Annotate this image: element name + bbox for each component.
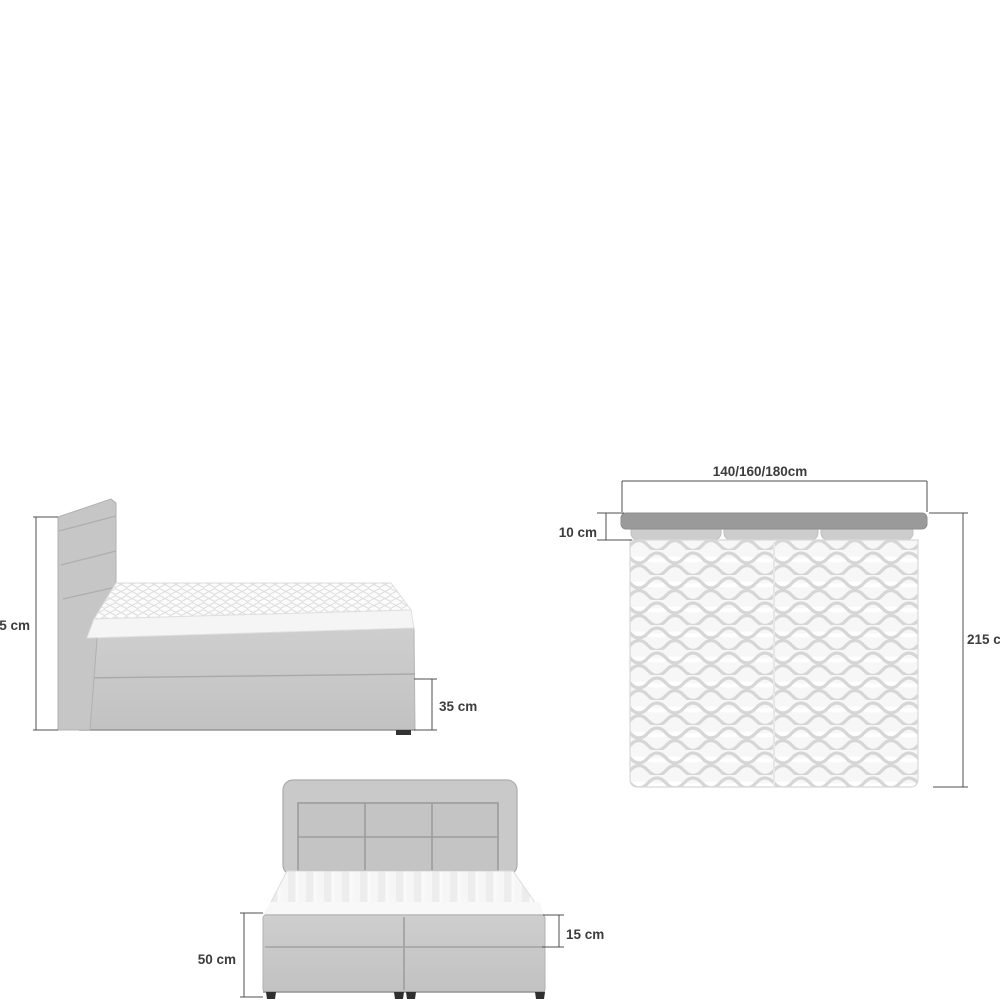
- side-height-label: 115 cm: [0, 618, 30, 633]
- side-height-dimension: 115 cm: [0, 517, 58, 730]
- side-bed-foot: [396, 730, 411, 735]
- front-foot-outer-right: [535, 992, 545, 999]
- top-headboard-depth-label: 10 cm: [559, 525, 597, 540]
- top-headboard-strip: [621, 513, 927, 529]
- top-view: 140/160/180cm 10 cm 215 cm: [559, 464, 1000, 787]
- front-box-top-dimension: 15 cm: [542, 915, 604, 947]
- front-foot-outer-left: [266, 992, 276, 999]
- front-base-height-dimension: 50 cm: [198, 913, 263, 997]
- front-box-top-label: 15 cm: [566, 927, 604, 942]
- diagram-svg: 115 cm 35 cm: [0, 0, 1000, 1000]
- bed-dimensions-diagram: 115 cm 35 cm: [0, 0, 1000, 1000]
- side-foot-box-dimension: 35 cm: [414, 679, 477, 730]
- front-foot-inner-left: [394, 992, 404, 999]
- top-width-dimension: 140/160/180cm: [622, 464, 927, 512]
- top-width-label: 140/160/180cm: [713, 464, 808, 479]
- top-length-label: 215 cm: [967, 632, 1000, 647]
- front-base-height-label: 50 cm: [198, 952, 236, 967]
- front-foot-inner-right: [406, 992, 416, 999]
- front-mattress-band: [265, 902, 543, 914]
- front-view: 50 cm 15 cm: [198, 780, 605, 999]
- side-base-box: [79, 628, 415, 730]
- side-view: 115 cm 35 cm: [0, 499, 477, 735]
- side-foot-box-label: 35 cm: [439, 699, 477, 714]
- top-length-dimension: 215 cm: [929, 513, 1000, 787]
